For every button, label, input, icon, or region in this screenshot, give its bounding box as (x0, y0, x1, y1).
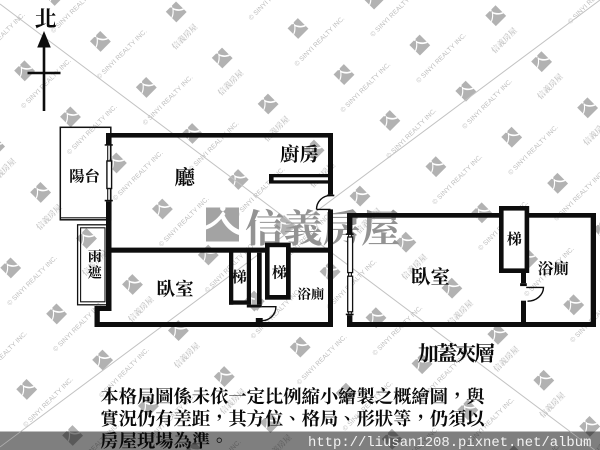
svg-text:http://liusan1208.pixnet.net/a: http://liusan1208.pixnet.net/album (308, 435, 591, 450)
